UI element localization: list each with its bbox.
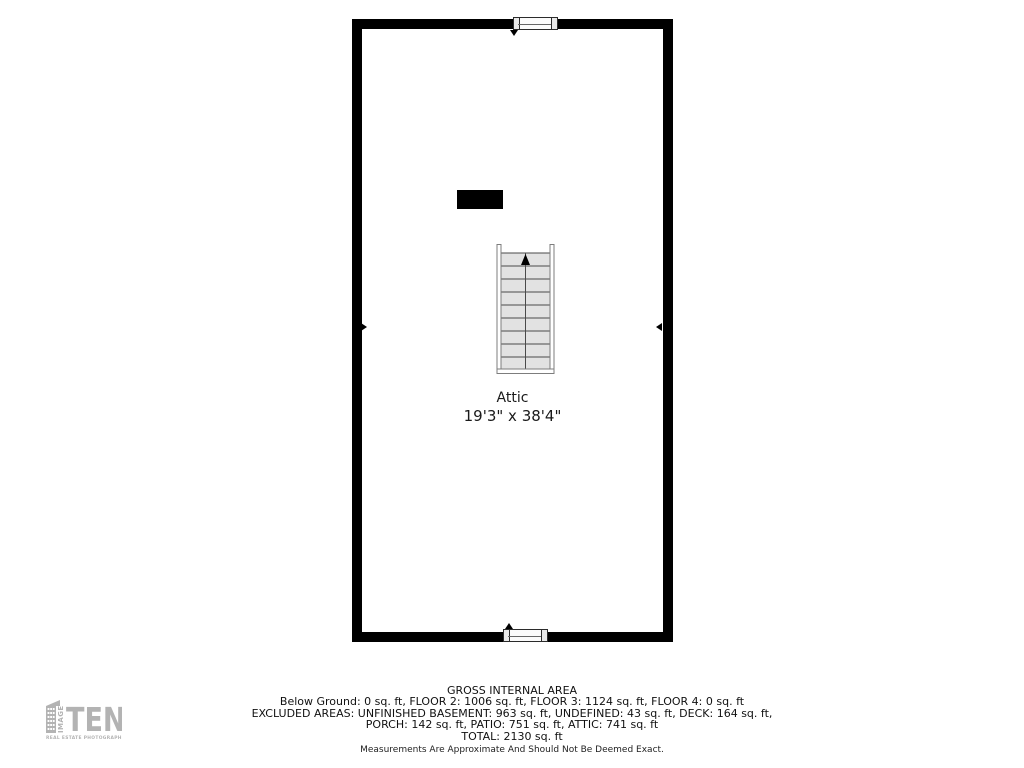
area-summary-line: PORCH: 142 sq. ft, PATIO: 751 sq. ft, AT… [0, 719, 1024, 730]
room-label: Attic 19'3" x 38'4" [352, 391, 673, 424]
staircase [496, 244, 555, 374]
room-name: Attic [352, 391, 673, 405]
logo-wordmark: TEN [66, 701, 122, 739]
window-bottom [503, 629, 548, 642]
window-top [513, 17, 558, 30]
window-top-cap-right [551, 17, 558, 30]
window-bottom-cap-right [541, 629, 548, 642]
disclaimer-text: Measurements Are Approximate And Should … [0, 745, 1024, 756]
logo-tagline-text: REAL ESTATE PHOTOGRAPHERS [46, 735, 122, 741]
window-bottom-midline [508, 636, 543, 637]
area-summary-total: TOTAL: 2130 sq. ft [0, 731, 1024, 742]
window-top-midline [518, 24, 553, 25]
area-summary: GROSS INTERNAL AREA Below Ground: 0 sq. … [0, 685, 1024, 756]
imageten-logo: IMAGE TEN REAL ESTATE PHOTOGRAPHERS [46, 699, 122, 741]
wall-marker-left-icon [361, 323, 367, 331]
logo-name-text: TEN [66, 701, 122, 739]
chimney-block [457, 190, 503, 209]
stairs-rail-left [497, 245, 501, 374]
logo-roof-shape [46, 700, 60, 706]
marker-bottom-icon [505, 623, 513, 629]
stairs-rail-bottom [497, 369, 554, 374]
marker-top-icon [510, 30, 518, 36]
floor-plan-page: { "plan": { "room_name": "Attic", "room_… [0, 0, 1024, 768]
room-dimensions: 19'3" x 38'4" [352, 409, 673, 424]
logo-vertical-text: IMAGE [57, 705, 65, 733]
stairs-rail-right [550, 245, 554, 374]
wall-marker-right-icon [656, 323, 662, 331]
